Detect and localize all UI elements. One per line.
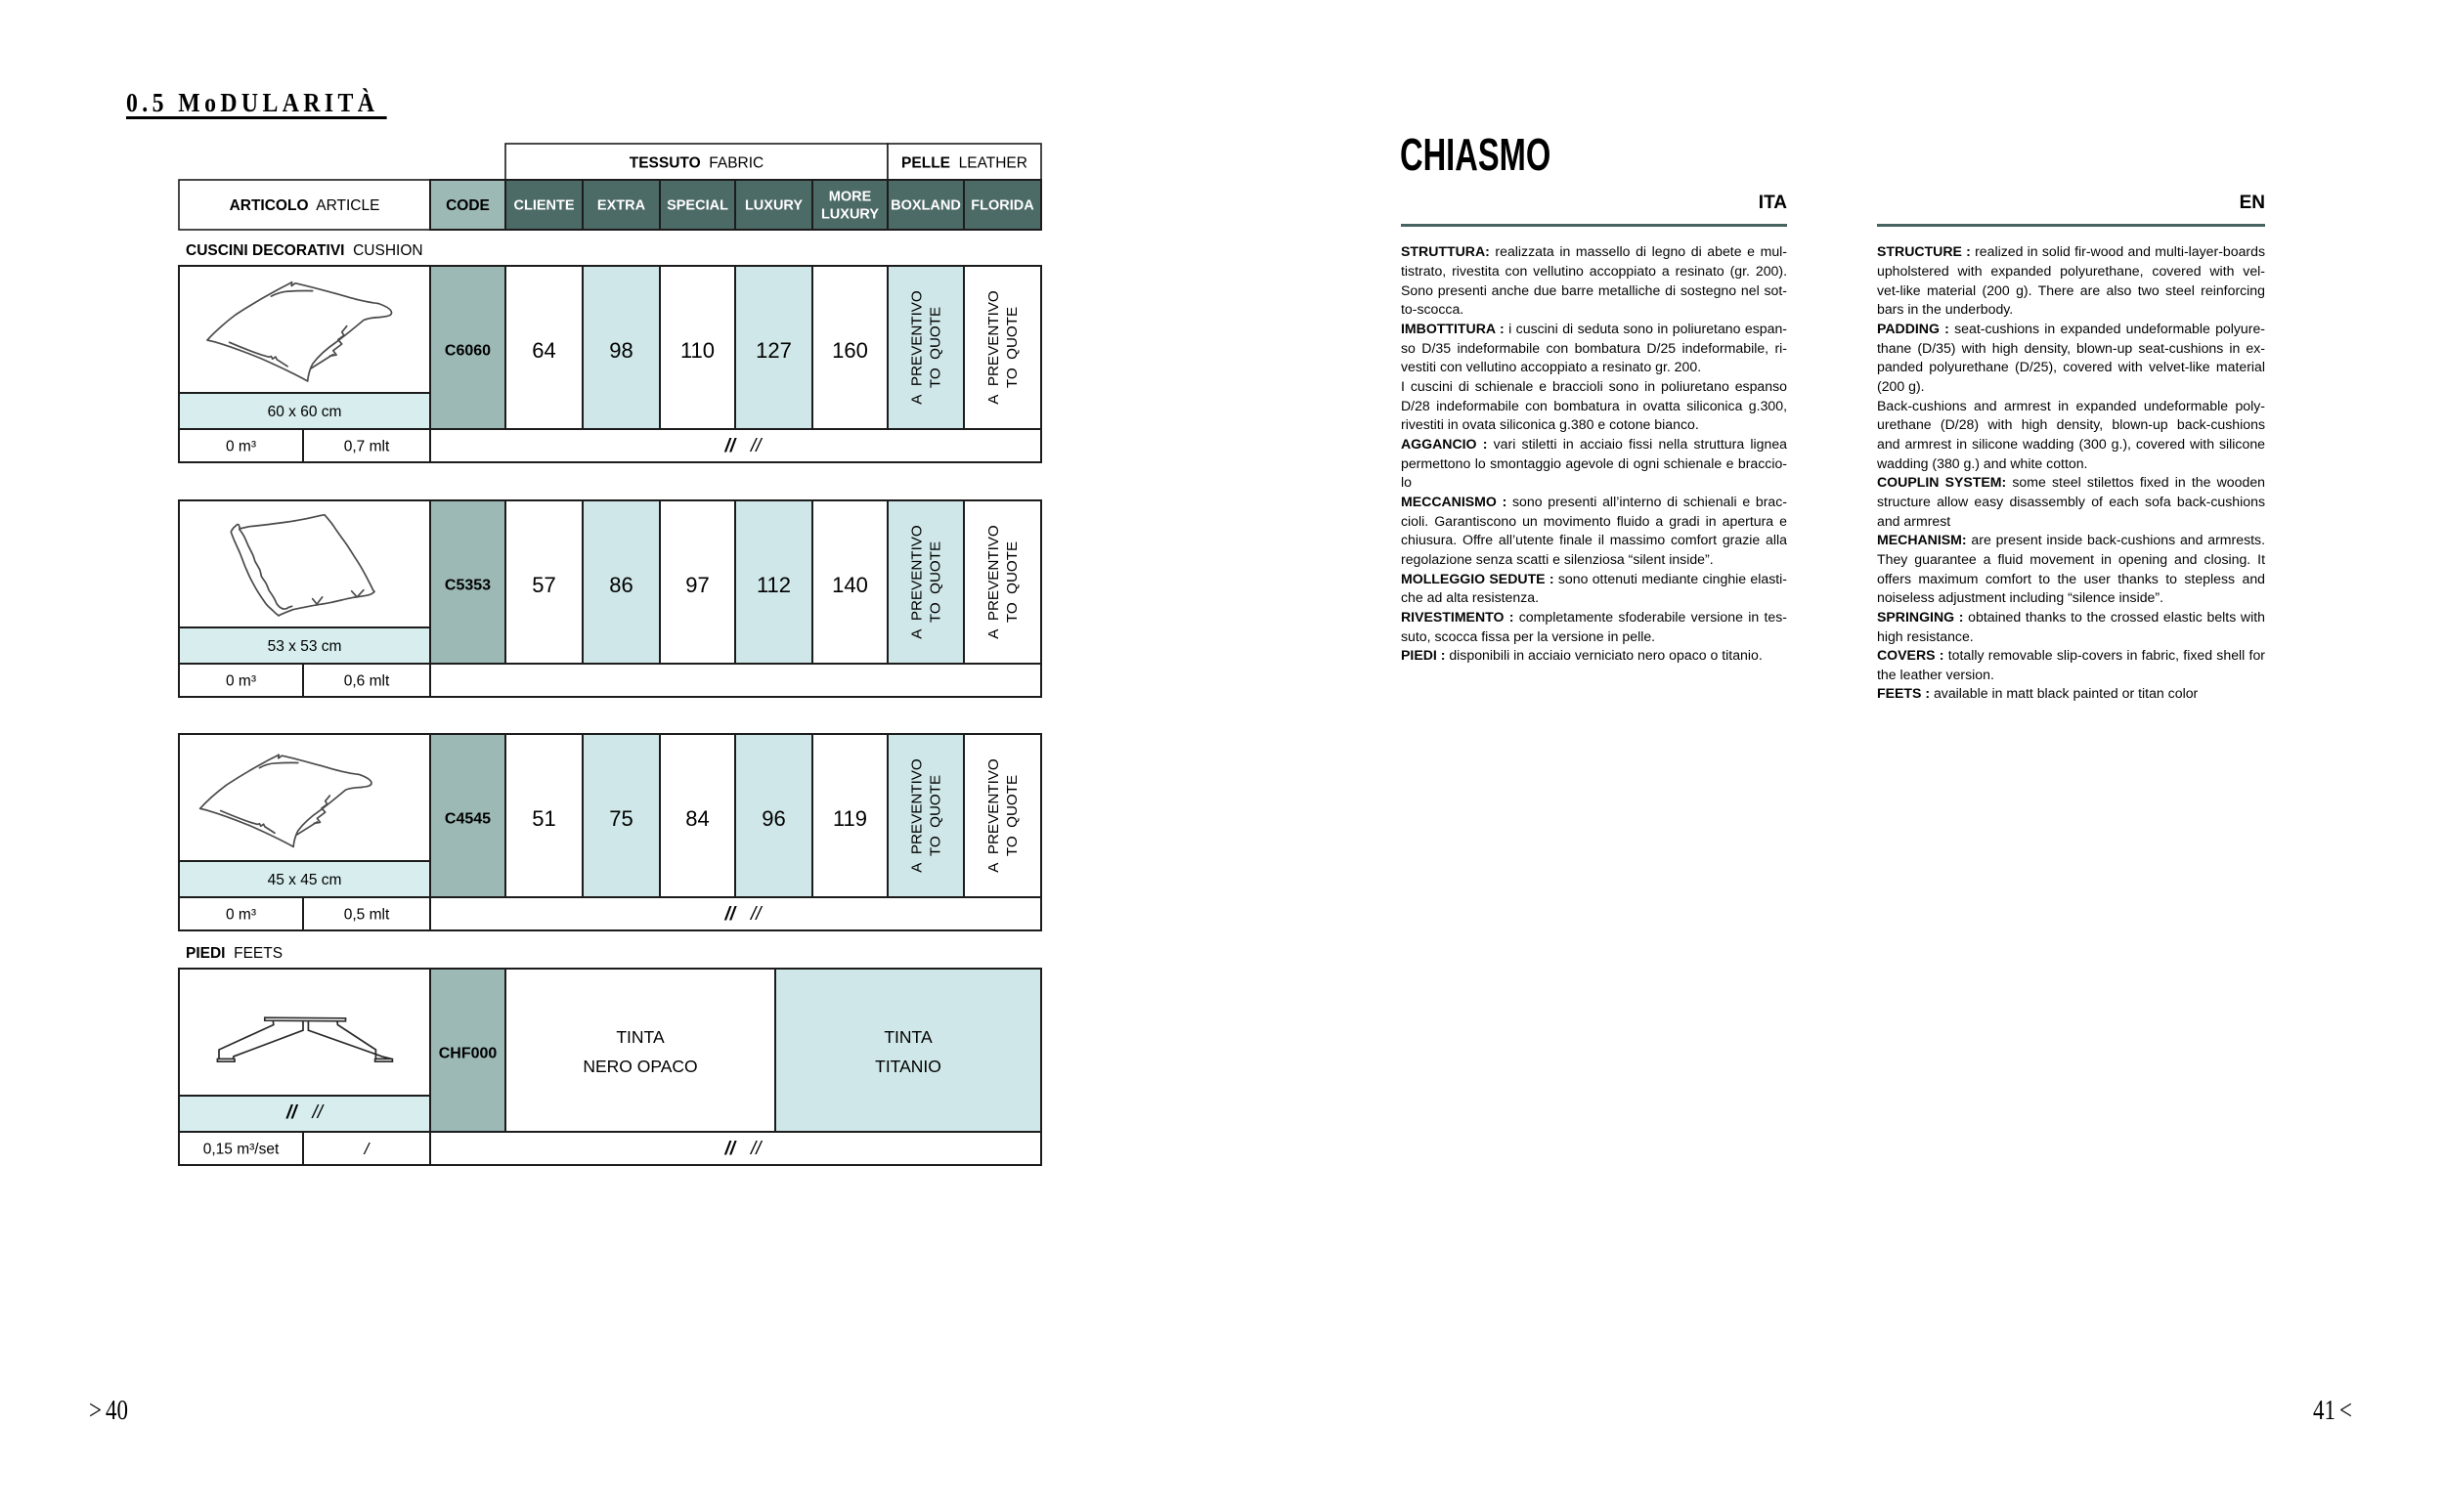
svg-text:NERO OPACO: NERO OPACO <box>583 1057 697 1076</box>
svg-text:75: 75 <box>609 806 633 831</box>
svg-text:160: 160 <box>832 338 868 363</box>
svg-text:0 m³: 0 m³ <box>226 439 256 455</box>
svg-text:CUSCINI DECORATIVI CUSHION: CUSCINI DECORATIVI CUSHION <box>186 242 423 259</box>
svg-text:84: 84 <box>685 806 709 831</box>
svg-text:CODE: CODE <box>446 197 490 214</box>
svg-text:PIEDI FEETS: PIEDI FEETS <box>186 945 283 962</box>
svg-text:97: 97 <box>685 573 709 597</box>
svg-text:ARTICOLO ARTICLE: ARTICOLO ARTICLE <box>230 197 380 214</box>
svg-text:45 x 45 cm: 45 x 45 cm <box>268 872 342 888</box>
svg-text:TINTA: TINTA <box>616 1027 665 1047</box>
svg-text:53 x 53 cm: 53 x 53 cm <box>268 638 342 655</box>
svg-text:TITANIO: TITANIO <box>875 1057 941 1076</box>
svg-text:0 m³: 0 m³ <box>226 673 256 690</box>
svg-text:LUXURY: LUXURY <box>745 198 803 214</box>
svg-text:86: 86 <box>609 573 633 597</box>
svg-text:96: 96 <box>762 806 785 831</box>
svg-text:127: 127 <box>756 338 792 363</box>
svg-text:SPECIAL: SPECIAL <box>667 198 728 214</box>
svg-text:BOXLAND: BOXLAND <box>891 198 961 214</box>
svg-text:EXTRA: EXTRA <box>597 198 646 214</box>
svg-text:CLIENTE: CLIENTE <box>513 198 574 214</box>
svg-text:110: 110 <box>680 338 715 363</box>
svg-text:51: 51 <box>532 806 555 831</box>
svg-text:MORE: MORE <box>829 190 872 205</box>
svg-text:98: 98 <box>609 338 633 363</box>
svg-text:0,6 mlt: 0,6 mlt <box>344 673 390 690</box>
svg-text:C5353: C5353 <box>445 578 491 594</box>
svg-text:64: 64 <box>532 338 555 363</box>
svg-text:0,15 m³/set: 0,15 m³/set <box>203 1142 280 1158</box>
svg-text:0 m³: 0 m³ <box>226 907 256 924</box>
svg-text:0,7 mlt: 0,7 mlt <box>344 439 390 455</box>
svg-text:140: 140 <box>832 573 868 597</box>
svg-text:TESSUTO FABRIC: TESSUTO FABRIC <box>630 155 764 172</box>
svg-text:C6060: C6060 <box>445 343 491 360</box>
svg-text:C4545: C4545 <box>445 811 491 828</box>
svg-text:CHF000: CHF000 <box>439 1046 498 1062</box>
svg-text:0,5 mlt: 0,5 mlt <box>344 907 390 924</box>
svg-text:112: 112 <box>757 573 791 597</box>
svg-text:FLORIDA: FLORIDA <box>971 198 1034 214</box>
svg-text:TINTA: TINTA <box>884 1027 933 1047</box>
svg-text:57: 57 <box>532 573 555 597</box>
svg-text:PELLE LEATHER: PELLE LEATHER <box>901 155 1027 172</box>
svg-text:60 x 60 cm: 60 x 60 cm <box>268 404 342 420</box>
svg-text:119: 119 <box>833 806 867 831</box>
svg-text:LUXURY: LUXURY <box>821 207 879 223</box>
